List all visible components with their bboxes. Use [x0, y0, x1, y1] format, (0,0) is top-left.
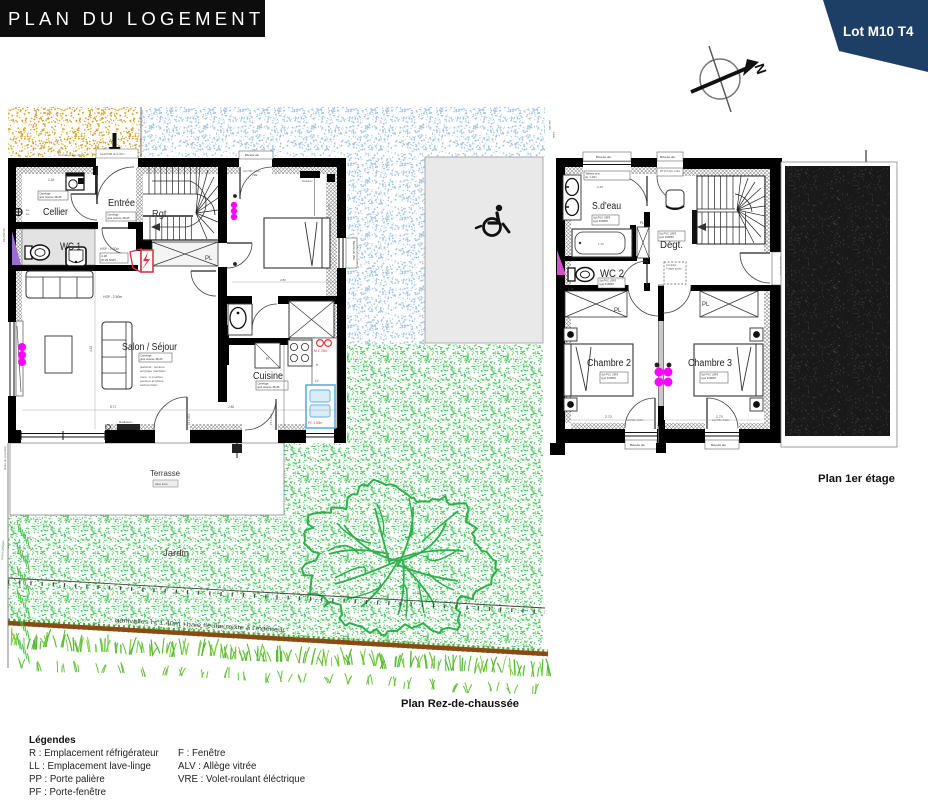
svg-text:Sol PVC U3P3: Sol PVC U3P3	[601, 372, 619, 376]
svg-text:Combles: Combles	[666, 263, 677, 267]
svg-text:PL: PL	[614, 308, 622, 314]
svg-text:2.70: 2.70	[605, 415, 612, 419]
svg-text:2.43: 2.43	[597, 185, 603, 189]
svg-text:Lilas: Lilas	[552, 132, 556, 139]
svg-text:grès cérame 45x45: grès cérame 45x45	[107, 216, 130, 220]
svg-text:Plan 1er étage: Plan 1er étage	[818, 473, 895, 485]
svg-text:R: R	[266, 356, 269, 361]
svg-text:VRE: VRE	[252, 173, 258, 177]
svg-text:Terrasse: Terrasse	[150, 469, 181, 478]
svg-text:1.13: 1.13	[568, 287, 574, 291]
svg-text:HSP : 2.30m: HSP : 2.30m	[100, 247, 119, 251]
svg-text:F : Fenêtre: F : Fenêtre	[178, 748, 225, 759]
svg-text:Tablette bois: Tablette bois	[585, 171, 600, 175]
svg-text:Seuil PMR alu 1.00m: Seuil PMR alu 1.00m	[100, 152, 124, 156]
svg-text:Carrelage: Carrelage	[107, 212, 119, 216]
svg-text:grès cérame 45x45: grès cérame 45x45	[140, 357, 163, 361]
svg-text:Bavette alu: Bavette alu	[245, 153, 259, 157]
svg-text:ép. 1.40m: ép. 1.40m	[585, 175, 597, 179]
svg-text:2.80: 2.80	[228, 405, 234, 409]
svg-text:PF 1.00m: PF 1.00m	[269, 414, 273, 425]
svg-text:4.40: 4.40	[89, 346, 93, 352]
svg-text:Cellier: Cellier	[43, 207, 69, 218]
svg-text:PA 60/2.04: PA 60/2.04	[2, 228, 6, 242]
svg-text:2.80: 2.80	[280, 278, 286, 282]
svg-text:Trappe accès: Trappe accès	[666, 267, 682, 271]
svg-text:PP : Porte palière: PP : Porte palière	[29, 774, 105, 785]
svg-text:LL: LL	[26, 212, 30, 216]
svg-text:Sol PVC U3P3: Sol PVC U3P3	[593, 215, 611, 219]
svg-text:Salon / Séjour: Salon / Séjour	[122, 341, 177, 353]
svg-text:satinée blanc: satinée blanc	[140, 383, 158, 387]
svg-text:Jardin: Jardin	[163, 548, 189, 559]
svg-text:type FORBO: type FORBO	[659, 235, 674, 239]
svg-text:8.71: 8.71	[110, 405, 116, 409]
svg-text:Sol PVC U3P3: Sol PVC U3P3	[701, 372, 719, 376]
svg-text:Rgt.: Rgt.	[152, 209, 169, 220]
svg-text:type FORBO: type FORBO	[601, 376, 616, 380]
svg-text:Bavette alu: Bavette alu	[660, 155, 675, 159]
svg-text:Bavette alu VRE: Bavette alu VRE	[352, 241, 356, 260]
svg-text:PF : Porte-fenêtre: PF : Porte-fenêtre	[29, 787, 106, 798]
svg-text:Bavette alu: Bavette alu	[711, 443, 726, 447]
svg-text:acrylique mat blanc: acrylique mat blanc	[140, 369, 166, 373]
svg-text:(8.09 NSP): (8.09 NSP)	[101, 258, 116, 262]
svg-text:grès cérame 45x45: grès cérame 45x45	[257, 385, 280, 389]
svg-text:PL: PL	[640, 221, 644, 225]
svg-text:type FORBO: type FORBO	[701, 376, 716, 380]
svg-text:Chambre 3: Chambre 3	[688, 358, 732, 369]
svg-text:grès cérame 45x45: grès cérame 45x45	[39, 195, 62, 199]
svg-text:M 1.78m: M 1.78m	[314, 349, 327, 353]
svg-text:Dégt.: Dégt.	[660, 240, 683, 251]
svg-text:cloture grillagée: cloture grillagée	[0, 540, 5, 560]
svg-text:2.18: 2.18	[48, 178, 54, 182]
svg-text:1.72: 1.72	[598, 242, 604, 246]
svg-text:HSP : 2.50m: HSP : 2.50m	[103, 295, 122, 299]
svg-text:rue des: rue des	[548, 120, 552, 131]
svg-text:LL : Emplacement lave-linge: LL : Emplacement lave-linge	[29, 761, 151, 772]
svg-text:Seuil béton lavé 45x45: Seuil béton lavé 45x45	[58, 153, 85, 157]
svg-text:Chambre 2: Chambre 2	[587, 358, 631, 369]
svg-text:type FORBO: type FORBO	[599, 282, 614, 286]
svg-text:R : Emplacement réfrigérateur: R : Emplacement réfrigérateur	[29, 748, 160, 759]
svg-text:Radiateur: Radiateur	[302, 180, 313, 183]
svg-text:WC 1: WC 1	[60, 241, 81, 253]
svg-text:2.70: 2.70	[716, 415, 723, 419]
svg-text:Carrelage: Carrelage	[140, 353, 152, 357]
svg-text:ALV : Allège vitrée: ALV : Allège vitrée	[178, 761, 256, 772]
svg-text:VRE : Volet-roulant éléctrique: VRE : Volet-roulant éléctrique	[178, 774, 305, 785]
svg-text:Sol PVC U3P3: Sol PVC U3P3	[599, 278, 617, 282]
svg-text:3.10: 3.10	[327, 204, 331, 210]
svg-text:limite de propriété: limite de propriété	[3, 446, 7, 470]
svg-text:Légendes: Légendes	[29, 735, 76, 746]
svg-text:Carrelage: Carrelage	[257, 381, 269, 385]
svg-text:PL: PL	[702, 302, 710, 308]
svg-text:dalles béton: dalles béton	[155, 483, 169, 486]
svg-text:PF 1.00m: PF 1.00m	[187, 414, 191, 425]
svg-text:PP 43.5 fois 1.00m: PP 43.5 fois 1.00m	[660, 170, 680, 173]
svg-text:Radiateur: Radiateur	[119, 420, 132, 424]
svg-text:PL: PL	[205, 256, 213, 262]
svg-text:type FORBO: type FORBO	[593, 219, 608, 223]
svg-text:Bavette alu: Bavette alu	[596, 155, 611, 159]
svg-text:Carrelage: Carrelage	[39, 191, 51, 195]
svg-text:PC 1.50m: PC 1.50m	[308, 421, 323, 425]
svg-text:Bavette alu: Bavette alu	[630, 443, 645, 447]
svg-text:S.d'eau: S.d'eau	[592, 201, 621, 212]
svg-text:Plan Rez-de-chaussée: Plan Rez-de-chaussée	[401, 698, 519, 710]
svg-text:ALV 50x 1.00m: ALV 50x 1.00m	[243, 169, 261, 173]
svg-text:Entrée: Entrée	[108, 198, 135, 209]
svg-text:Sol PVC U3P3: Sol PVC U3P3	[659, 231, 677, 235]
svg-text:Lot M10 T4: Lot M10 T4	[843, 24, 914, 39]
svg-text:Cuisine: Cuisine	[253, 371, 283, 382]
